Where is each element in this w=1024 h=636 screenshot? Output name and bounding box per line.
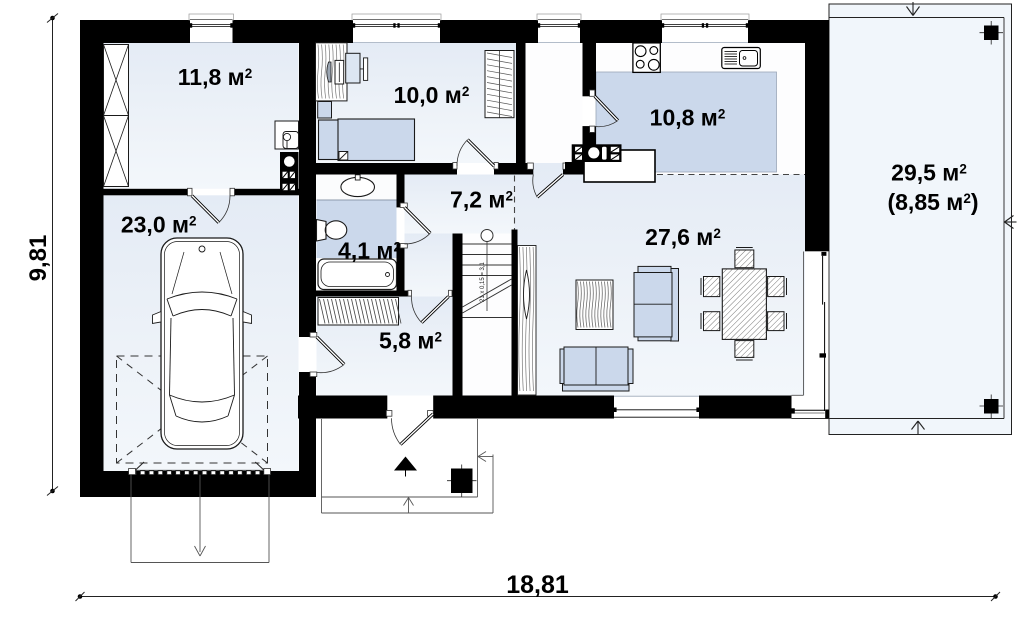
- svg-text:10,8 м2: 10,8 м2: [650, 105, 726, 131]
- svg-text:11,8 м2: 11,8 м2: [178, 64, 252, 90]
- svg-text:7,2 м2: 7,2 м2: [450, 187, 513, 213]
- svg-text:10,0 м2: 10,0 м2: [394, 82, 470, 108]
- svg-text:4,1 м2: 4,1 м2: [338, 238, 401, 264]
- svg-text:5,8 м2: 5,8 м2: [379, 328, 442, 354]
- svg-text:29,5 м2: 29,5 м2: [891, 160, 967, 186]
- svg-text:23,0 м2: 23,0 м2: [121, 212, 197, 238]
- svg-text:21 x 0,15 = 3,1: 21 x 0,15 = 3,1: [480, 261, 486, 302]
- svg-text:9,81: 9,81: [25, 235, 52, 282]
- svg-text:18,81: 18,81: [506, 571, 569, 599]
- svg-text:27,6 м2: 27,6 м2: [645, 224, 721, 250]
